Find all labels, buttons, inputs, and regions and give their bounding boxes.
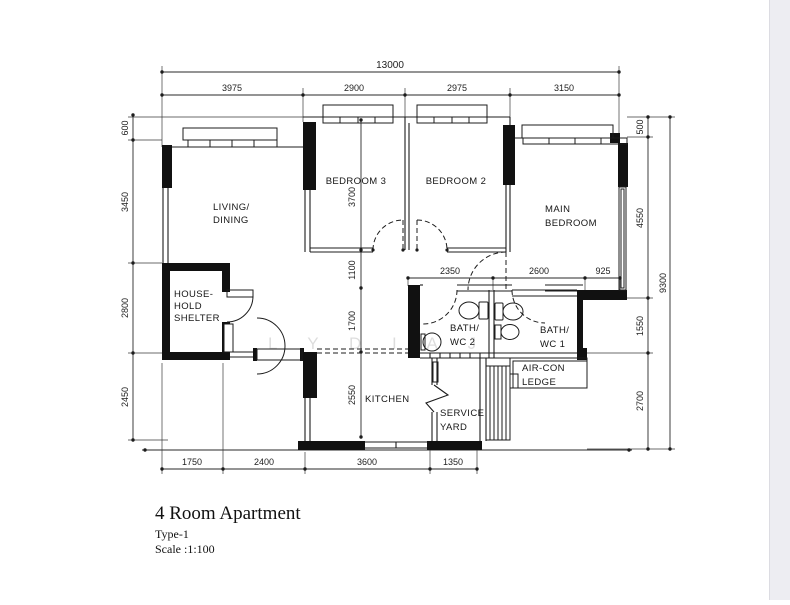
room-shelter-line1: HOUSE- [174, 289, 213, 300]
dim-overall-width: 13000 [376, 60, 404, 71]
dim-bottom-3: 1350 [443, 457, 463, 467]
dim-inner-v-0: 3700 [347, 187, 357, 207]
dim-inner-h-0: 2350 [440, 266, 460, 276]
plan-scale: Scale :1:100 [155, 542, 215, 556]
room-main-line2: BEDROOM [545, 218, 597, 229]
room-bedroom2: BEDROOM 2 [426, 176, 487, 187]
door-swings [227, 290, 302, 374]
dim-top-2: 2975 [447, 83, 467, 93]
room-living-line1: LIVING/ [213, 202, 250, 213]
room-shelter-line3: SHELTER [174, 313, 220, 324]
dim-left-1: 3450 [120, 192, 130, 212]
dim-left-0: 600 [120, 120, 130, 135]
room-bath2-line1: BATH/ [450, 323, 479, 334]
floor-plan-canvas: L Y D I A J [0, 0, 790, 600]
title-block: 4 Room Apartment Type-1 Scale :1:100 [155, 503, 301, 556]
dim-inner-v-3: 2550 [347, 385, 357, 405]
dim-inner-h-2: 925 [595, 266, 610, 276]
dim-inner-v-1: 1100 [347, 260, 357, 279]
dim-left-3: 2450 [120, 387, 130, 407]
dim-bottom-2: 3600 [357, 457, 377, 467]
room-bath1-line2: WC 1 [540, 339, 565, 350]
dim-right-3: 2700 [635, 391, 645, 411]
room-bath2-line2: WC 2 [450, 337, 475, 348]
room-service-line1: SERVICE [440, 408, 484, 419]
page-edge-strip [769, 0, 790, 600]
dim-right-2: 1550 [635, 316, 645, 336]
room-kitchen: KITCHEN [365, 394, 410, 405]
room-main-line1: MAIN [545, 204, 570, 215]
dim-inner-v-2: 1700 [347, 311, 357, 331]
dim-bottom-1: 2400 [254, 457, 274, 467]
dim-top-1: 2900 [344, 83, 364, 93]
dim-right-total: 9300 [658, 273, 668, 293]
room-living-line2: DINING [213, 215, 249, 226]
dim-top-0: 3975 [222, 83, 242, 93]
room-shelter-line2: HOLD [174, 301, 202, 312]
room-bedroom3: BEDROOM 3 [326, 176, 387, 187]
room-bath1-line1: BATH/ [540, 325, 569, 336]
room-aircon-line1: AIR-CON [522, 363, 565, 374]
dim-left-2: 2800 [120, 298, 130, 318]
dim-right-1: 4550 [635, 208, 645, 228]
plan-type: Type-1 [155, 527, 189, 541]
dim-inner-h-1: 2600 [529, 266, 549, 276]
room-service-line2: YARD [440, 422, 467, 433]
plan-title: 4 Room Apartment [155, 503, 301, 524]
room-aircon-line2: LEDGE [522, 377, 556, 388]
room-labels: LIVING/ DINING BEDROOM 3 BEDROOM 2 MAIN … [174, 176, 597, 433]
louvre-grille [486, 366, 510, 440]
dim-right-0: 500 [635, 119, 645, 134]
dim-top-3: 3150 [554, 83, 574, 93]
dim-bottom-0: 1750 [182, 457, 202, 467]
